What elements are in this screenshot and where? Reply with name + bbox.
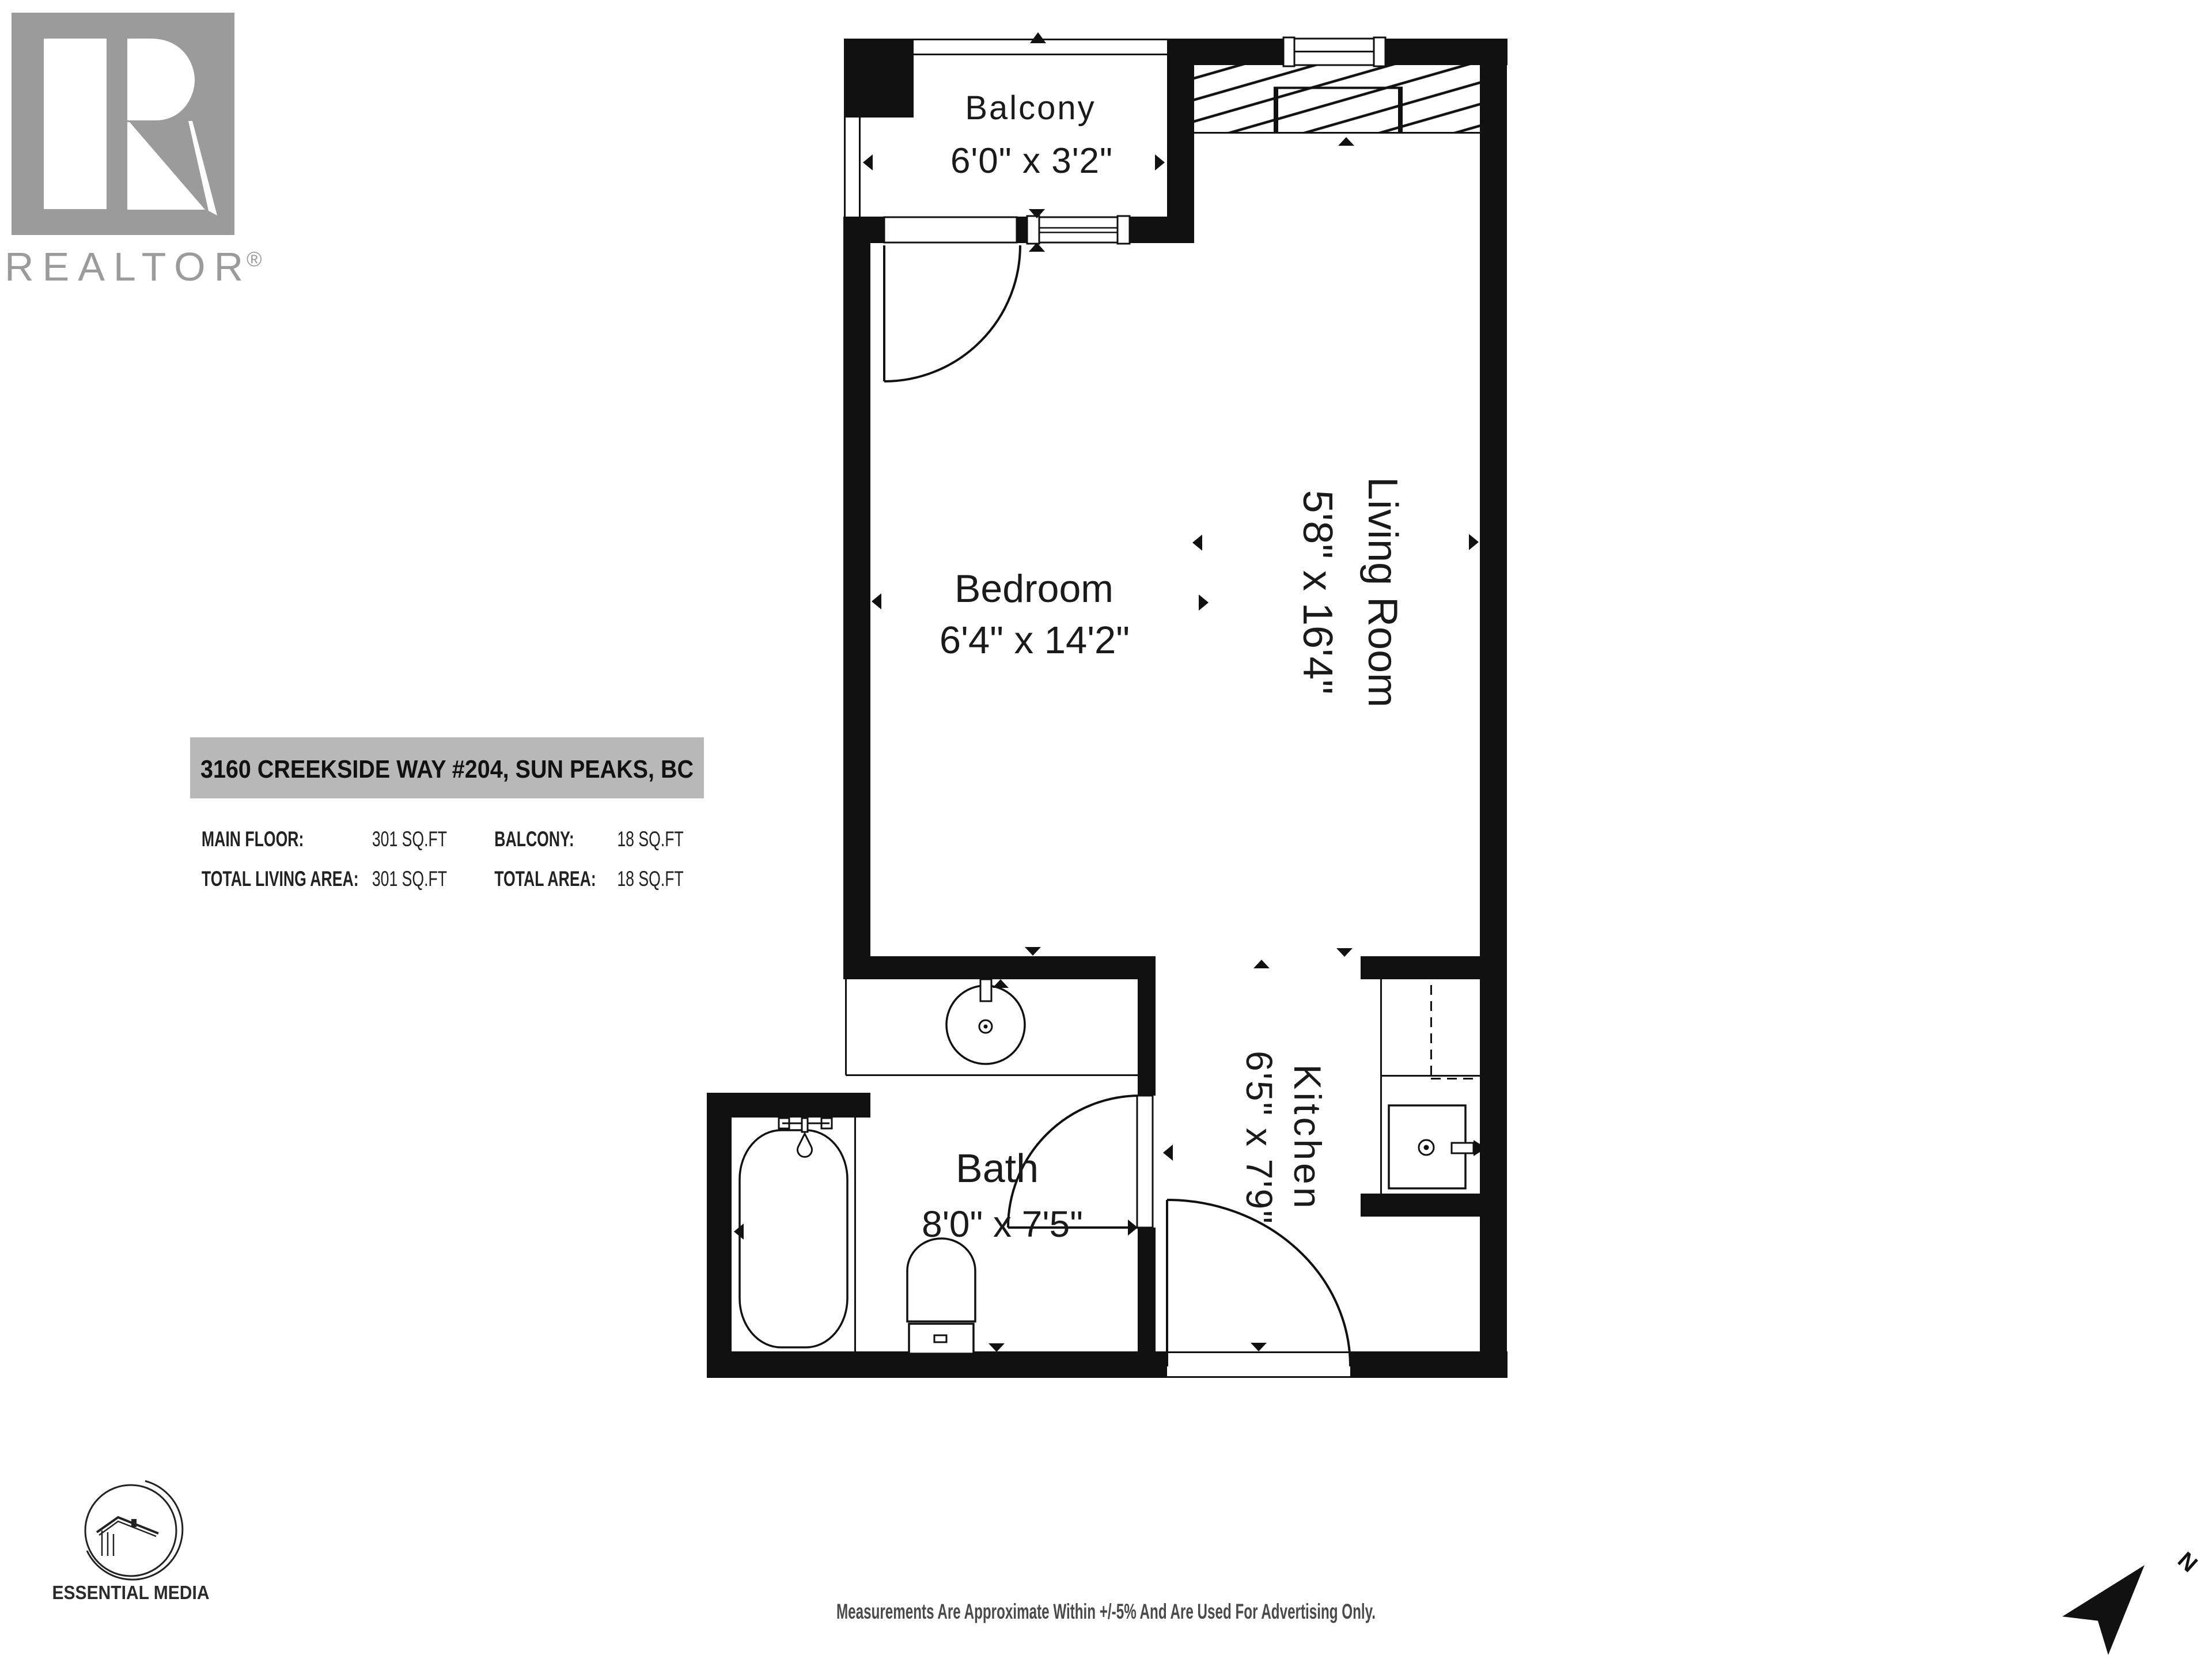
svg-text:3160 CREEKSIDE WAY #204, SUN P: 3160 CREEKSIDE WAY #204, SUN PEAKS, BC bbox=[200, 755, 694, 783]
svg-text:6'0" x 3'2": 6'0" x 3'2" bbox=[950, 141, 1113, 181]
svg-text:18 SQ.FT: 18 SQ.FT bbox=[617, 867, 683, 891]
svg-text:Bedroom: Bedroom bbox=[955, 567, 1113, 611]
svg-text:MAIN FLOOR:: MAIN FLOOR: bbox=[202, 827, 304, 851]
svg-text:TOTAL AREA:: TOTAL AREA: bbox=[494, 867, 596, 891]
svg-text:8'0" x 7'5": 8'0" x 7'5" bbox=[922, 1203, 1083, 1245]
svg-text:REALTOR: REALTOR bbox=[5, 244, 252, 289]
svg-text:BALCONY:: BALCONY: bbox=[494, 827, 574, 851]
svg-text:301 SQ.FT: 301 SQ.FT bbox=[372, 827, 447, 851]
svg-text:6'5" x 7'9": 6'5" x 7'9" bbox=[1238, 1051, 1280, 1225]
svg-text:18 SQ.FT: 18 SQ.FT bbox=[617, 827, 683, 851]
svg-text:Bath: Bath bbox=[956, 1146, 1039, 1191]
svg-text:301 SQ.FT: 301 SQ.FT bbox=[372, 867, 447, 891]
svg-text:5'8" x 16'4": 5'8" x 16'4" bbox=[1294, 490, 1340, 695]
svg-text:ESSENTIAL MEDIA: ESSENTIAL MEDIA bbox=[52, 1582, 210, 1603]
svg-text:®: ® bbox=[247, 247, 262, 271]
svg-text:Balcony: Balcony bbox=[965, 89, 1096, 127]
svg-text:Measurements Are Approximate W: Measurements Are Approximate Within +/-5… bbox=[836, 1600, 1376, 1623]
svg-text:Kitchen: Kitchen bbox=[1286, 1064, 1329, 1211]
svg-text:Living Room: Living Room bbox=[1359, 477, 1406, 707]
svg-text:TOTAL LIVING AREA:: TOTAL LIVING AREA: bbox=[202, 867, 359, 891]
svg-text:6'4" x 14'2": 6'4" x 14'2" bbox=[940, 619, 1130, 662]
